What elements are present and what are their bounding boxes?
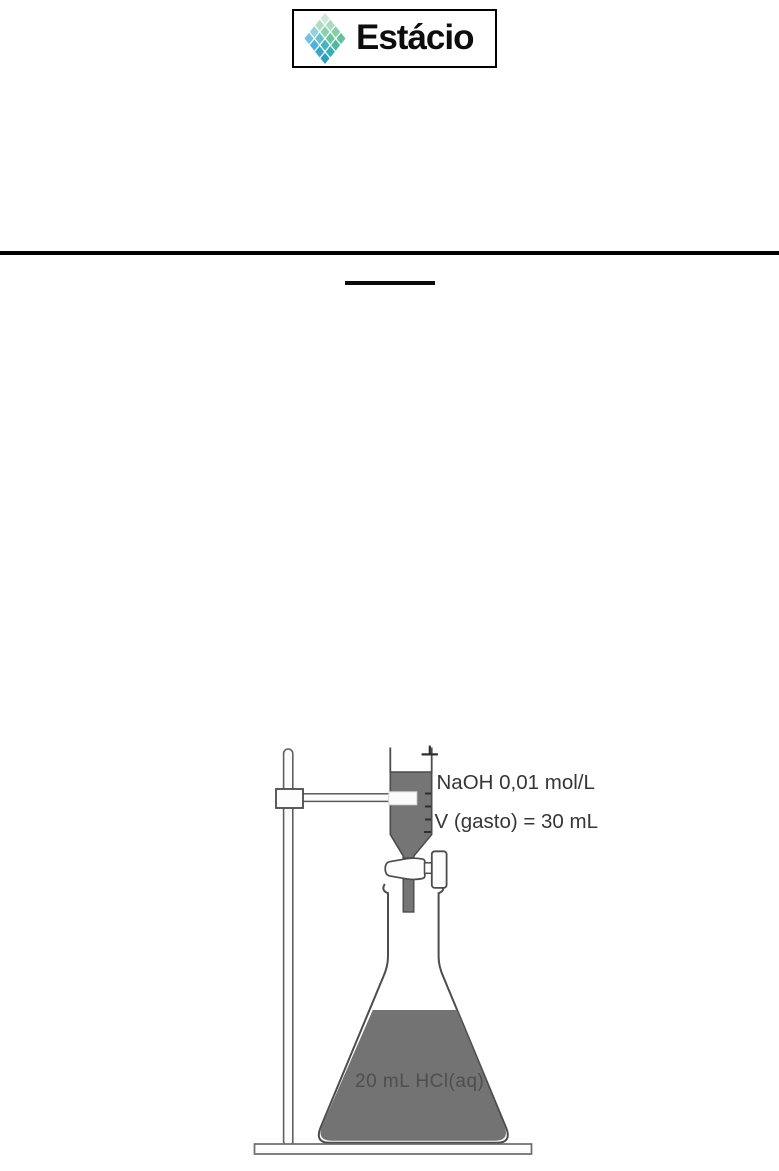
clamp-boss: [276, 789, 303, 808]
clamp-jaw: [389, 792, 417, 805]
document-page: Estácio 20 mL HCl(aq): [0, 0, 779, 1171]
burette-label: NaOH 0,01 mol/L: [437, 771, 595, 794]
clamp-arm: [297, 794, 396, 802]
stand-base: [255, 1144, 532, 1154]
burette-glass: [390, 748, 431, 774]
titration-figure: 20 mL HCl(aq) NaOH 0,01 mol/L V (gasto) …: [250, 735, 610, 1165]
short-underline: [345, 281, 435, 285]
flask-label: 20 mL HCl(aq): [355, 1071, 484, 1092]
estacio-diamond-icon: [302, 10, 348, 67]
stopcock-plug: [385, 858, 425, 879]
stopcock-handle: [432, 851, 447, 888]
burette-graduation-tick: [423, 747, 438, 755]
volume-label: V (gasto) = 30 mL: [435, 810, 599, 833]
horizontal-rule: [0, 251, 779, 255]
logo-text: Estácio: [356, 20, 474, 58]
estacio-logo-box: Estácio: [292, 9, 497, 68]
